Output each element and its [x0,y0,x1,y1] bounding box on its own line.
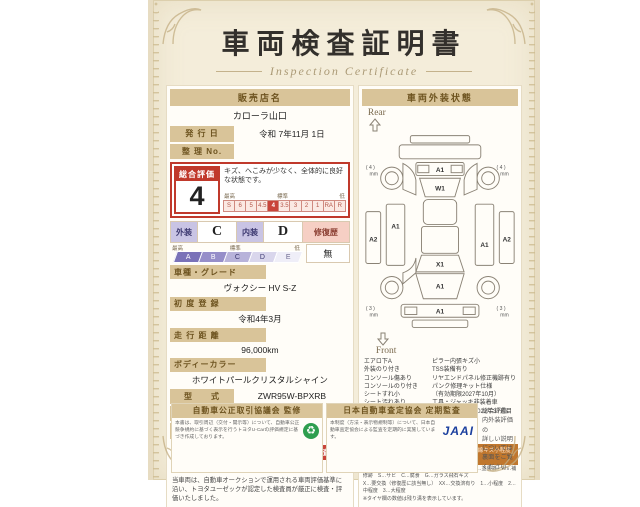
overall-rating-label: 総合評価 [176,168,218,181]
scale-cell: 1 [313,201,324,211]
scale-cell: 5 [246,201,257,211]
ref-no-row: 整 理 No. [170,144,350,159]
field-model-grade: 車種・グレード ヴォクシー HV S-Z [170,265,350,295]
mark-right-outer: A2 [503,236,512,243]
dealer-name-header: 販売店名 [170,89,350,106]
left-rear-fender [403,163,416,195]
exterior-grade: C [198,222,237,242]
cabin [421,226,458,253]
scale-cell: 6 [235,201,246,211]
subtitle-flourish-line [216,71,262,72]
scale-cell: 3 [290,201,301,211]
note-item: パンク修理キット仕様 [432,383,516,391]
front-label: Front [376,346,397,356]
car-diagram: ( 4 ) mm ( 4 ) mm A1 W1 [362,133,518,331]
fair-trade-council-text: 本書は、取引周辺（交付・開示等）について、自動車公正競争規約に基づく表示を行うト… [175,420,300,442]
lace-border-right [529,0,535,480]
field-body-color: ボディーカラー ホワイトパールクリスタルシャイン [170,358,350,388]
note-item: コンソールのり付き [364,383,430,391]
issue-date-row: 発 行 日 令和 7年11月 1日 [170,126,350,142]
note-item: ピラー内張キズ小 [432,358,516,366]
rear-bumper [399,145,481,159]
rear-label: Rear [368,108,386,118]
jaai-box: 日本自動車査定協会 定期監査 本制度（方法・表示物規制等）について、日本自動車査… [327,404,477,472]
note-item: 外装のり付き [364,366,430,374]
right-rear-fender [464,163,477,195]
dealer-name-value: カローラ山口 [170,106,350,124]
inspection-certificate: 車両検査証明書 Inspection Certificate 販売店名 カローラ… [148,0,540,480]
council-emblem-icon: ♻ [303,423,319,439]
right-side-panel [475,204,494,265]
interior-grade: D [264,222,303,242]
ref-no-value [234,144,350,159]
fair-trade-council-title: 自動車公正取引協議会 監修 [172,404,322,418]
svg-text:mm: mm [500,312,508,318]
lace-border-left [153,0,159,480]
front-grille [412,320,468,327]
svg-text:mm: mm [500,171,508,177]
mark-hood: A1 [436,284,445,291]
disclaimer-text: 当車両は、自動車オークションで運用される車両評価基準に沿い、トヨタユーゼックが認… [170,475,350,504]
corner-flourish-icon [159,2,205,48]
backside-note: 総合評価、内外装評価の 詳しい説明については 裏面をご覧ください。 [482,404,516,472]
ref-no-label: 整 理 No. [170,144,234,159]
rating-scale-labels: 最高 標準 低 [223,192,346,200]
grade-scale-labels: 最高 標準 低 [170,244,306,251]
tire-depth-rear-left: ( 4 ) [366,165,375,171]
corner-flourish-icon [483,2,529,48]
field-mileage: 走 行 距 離 96,000km [170,328,350,356]
scale-cell-selected: 4 [268,201,279,211]
rating-scale: S 6 5 4.5 4 3.5 3 2 1 RA R [223,200,346,212]
subtitle-flourish-line [426,71,472,72]
grade-scale: A B C D E [170,251,306,263]
grade-cell: E [273,251,303,263]
note-item: （有効期限2027年10月） [432,391,516,399]
mark-left-side: A1 [391,223,400,230]
jaai-title: 日本自動車査定協会 定期監査 [327,404,477,418]
scale-standard-label: 標準 [277,192,288,200]
note-item: リヤエンドパネル修正機跡有り [432,375,516,383]
mark-rear-window: W1 [435,185,445,192]
certificate-subtitle: Inspection Certificate [270,64,418,79]
mark-windshield: X1 [436,261,444,268]
scale-cell: 3.5 [279,201,290,211]
overall-rating-box: 総合評価 4 キズ、へこみが少なく、全体的に良好な状態です。 最高 標準 低 S… [170,162,350,218]
overall-score: 4 [176,181,218,212]
subtitle-row: Inspection Certificate [167,64,521,79]
scale-cell: RA [324,201,335,211]
arrow-up-icon [368,118,382,133]
rear-direction: Rear [362,106,518,133]
field-first-registration: 初 度 登 録 令和4年3月 [170,297,350,327]
mark-rear-gate: A1 [436,167,445,174]
note-item: TSS装備有り [432,366,516,374]
mark-front-bumper: A1 [436,309,445,316]
tire-depth-rear-right: ( 4 ) [496,165,505,171]
front-direction: Front [362,331,518,356]
jaai-text: 本制度（方法・表示物規制等）について、日本自動車査定協会による監査を定期的に実施… [330,420,440,442]
tire-depth-front-left: ( 3 ) [366,306,375,312]
jaai-logo: JAAI [443,424,474,438]
grade-scale-row: 最高 標準 低 A B C D E 無 [170,244,350,263]
scale-cell: 2 [302,201,313,211]
scale-cell: R [335,201,345,211]
exterior-label: 外装 [171,222,198,242]
repair-history-label: 修復歴 [303,222,349,242]
note-item: コンソール傷あり [364,375,430,383]
scale-low-label: 低 [339,192,345,200]
rating-comment: キズ、へこみが少なく、全体的に良好な状態です。 [223,166,346,192]
arrow-down-icon [376,331,390,346]
rear-spoiler [410,136,469,143]
mark-right-side: A1 [480,242,489,249]
roof [423,200,456,225]
scale-cell: 4.5 [257,201,268,211]
svg-text:mm: mm [369,312,377,318]
exterior-condition-header: 車両外装状態 [362,89,518,106]
scale-cell: S [224,201,235,211]
tire-depth-front-right: ( 3 ) [496,306,505,312]
scale-best-label: 最高 [224,192,235,200]
certificate-title: 車両検査証明書 [167,22,521,62]
field-model-code: 型 式 ZWR95W-BPXRB [170,389,350,404]
footer: 自動車公正取引協議会 監修 本書は、取引周辺（交付・開示等）について、自動車公正… [172,404,516,472]
mark-left-outer: A2 [369,236,378,243]
note-item: シートすれ小 [364,391,430,399]
interior-label: 内装 [237,222,264,242]
fair-trade-council-box: 自動車公正取引協議会 監修 本書は、取引周辺（交付・開示等）について、自動車公正… [172,404,322,472]
svg-text:mm: mm [369,171,377,177]
repair-history-value: 無 [306,244,350,263]
issue-date-value: 令和 7年11月 1日 [234,126,350,142]
grade-row: 外装 C 内装 D 修復歴 [170,221,350,243]
issue-date-label: 発 行 日 [170,126,234,142]
note-item: エアロ下A [364,358,430,366]
left-side-panel [386,204,405,265]
overall-score-box: 総合評価 4 [174,166,220,214]
